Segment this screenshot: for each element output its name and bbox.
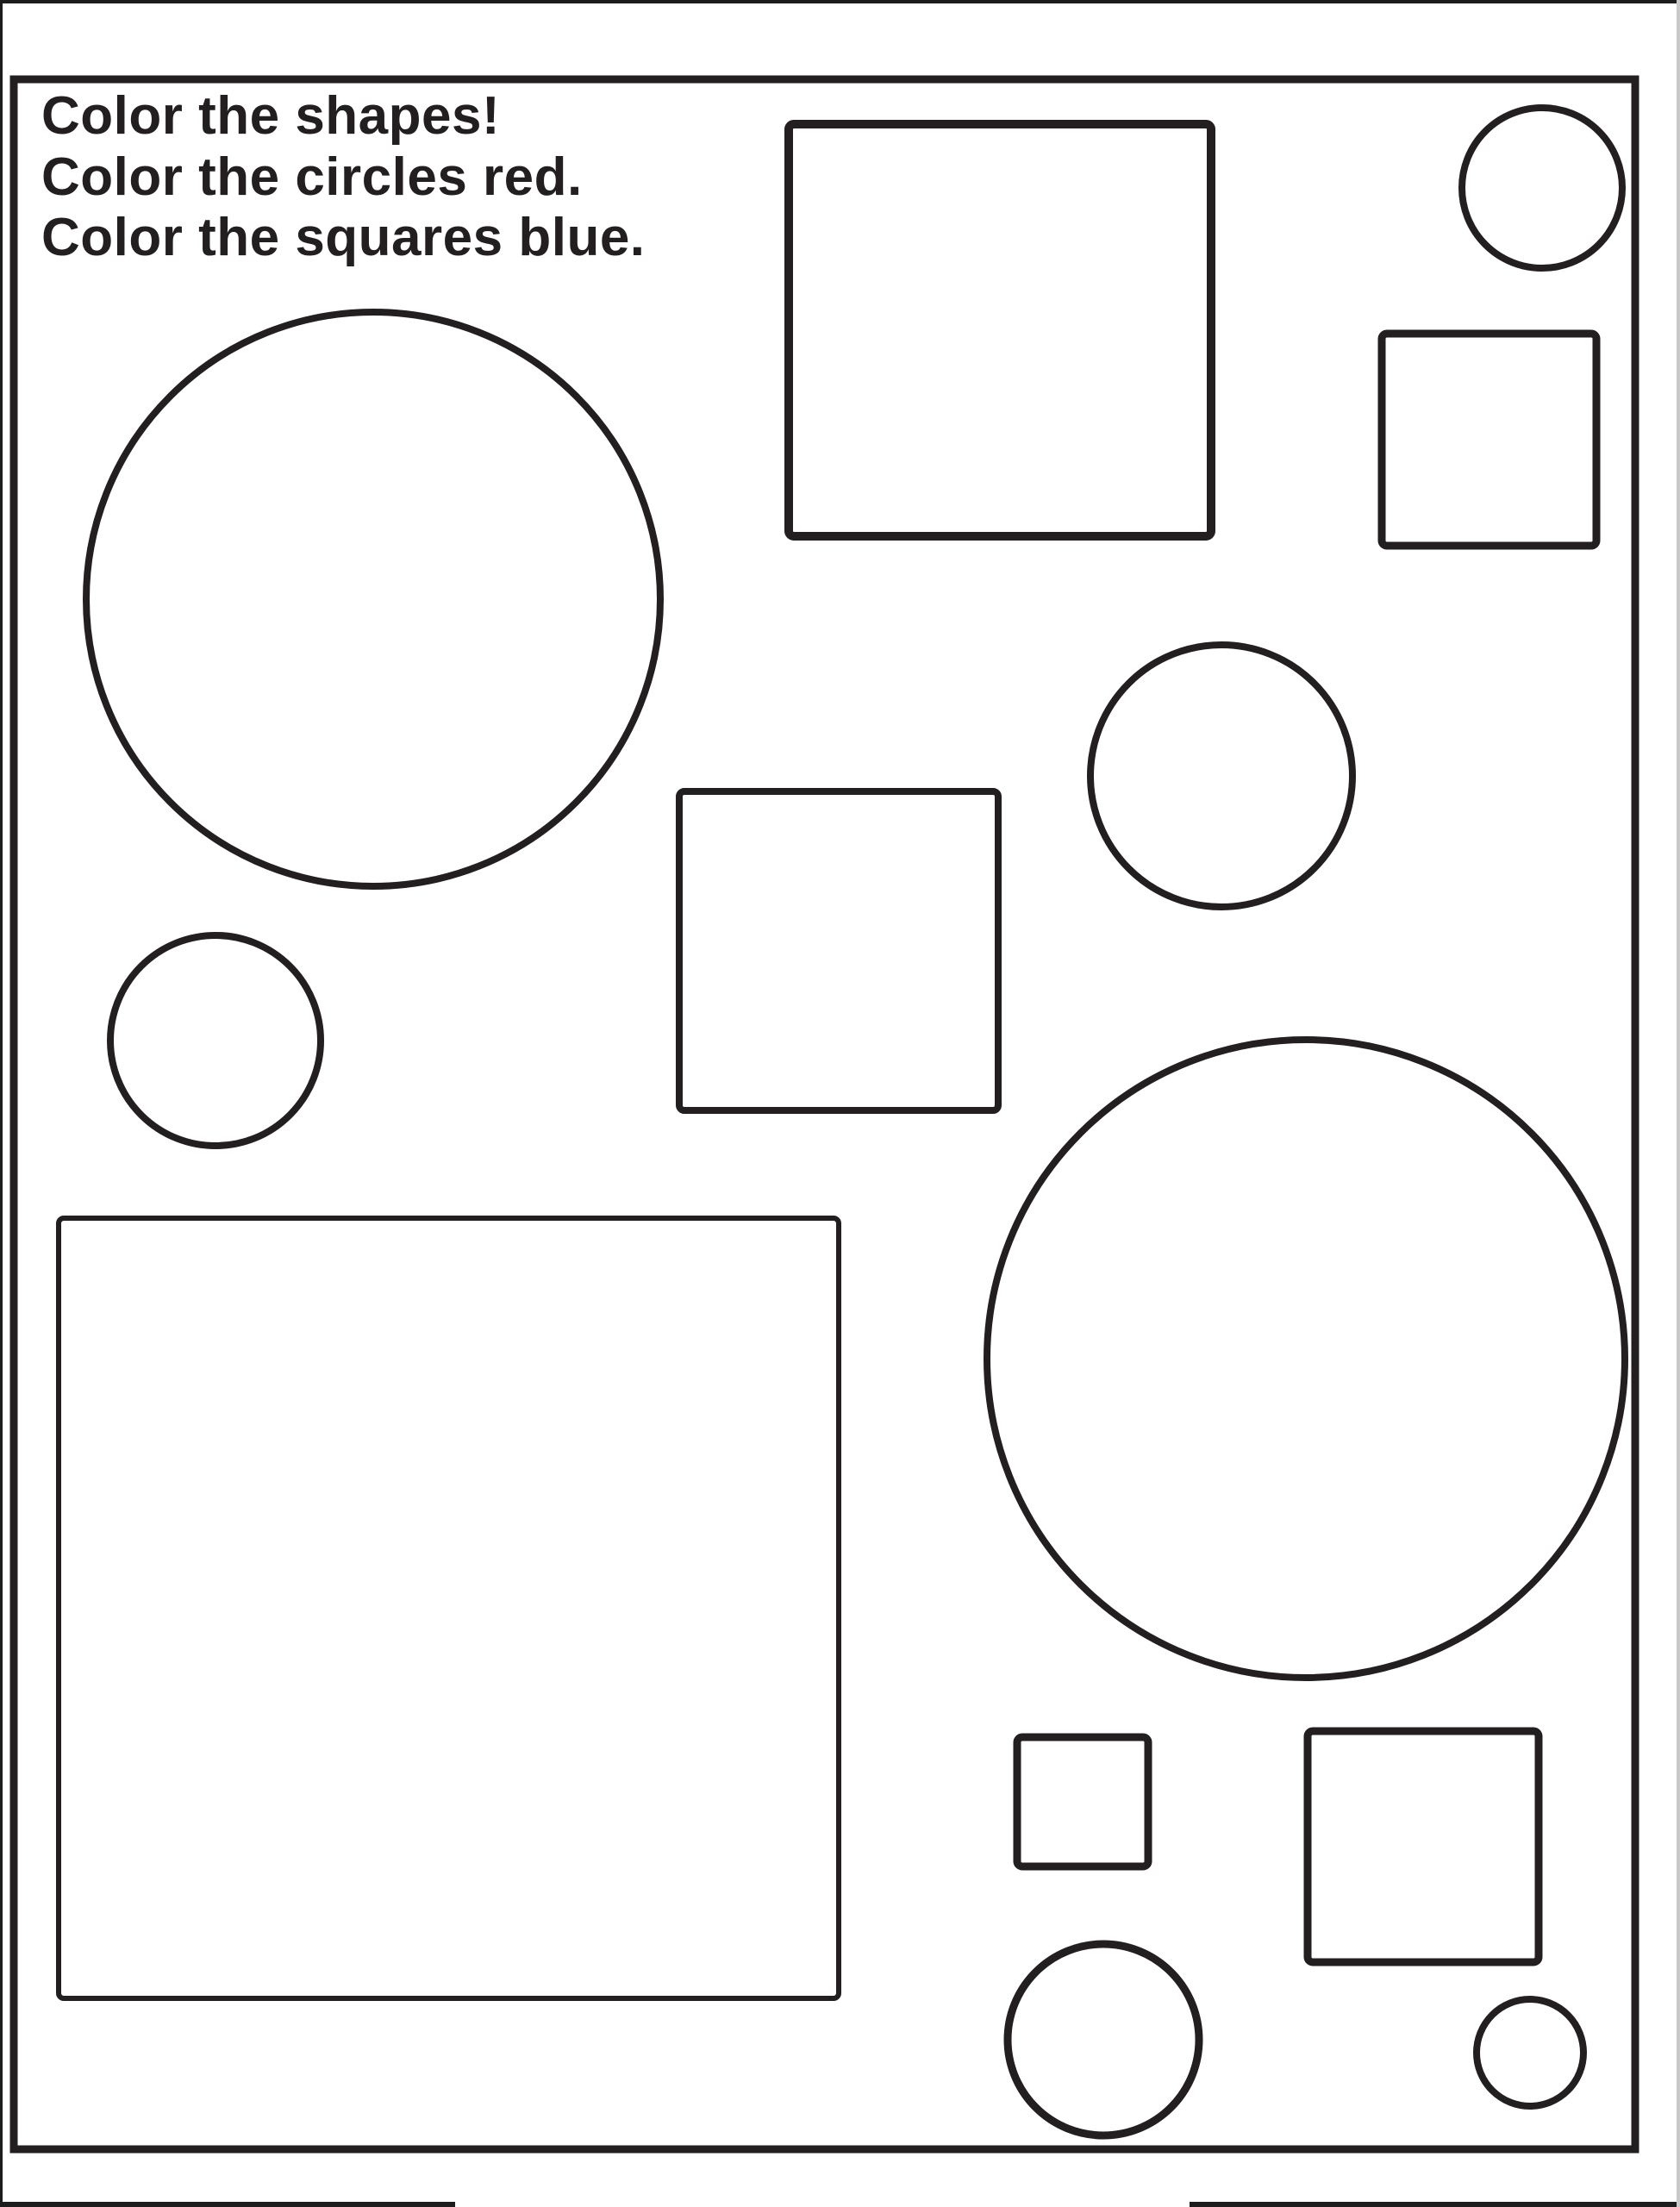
circle-left-small[interactable] — [110, 935, 321, 1146]
circle-large-top-left[interactable] — [86, 312, 660, 886]
circle-bottom-center[interactable] — [1008, 1944, 1199, 2135]
square-large-top[interactable] — [789, 124, 1211, 536]
square-large-bottom-left[interactable] — [59, 1218, 839, 1998]
scan-edge-right — [1677, 0, 1680, 2207]
scan-edge-top — [0, 0, 1680, 3]
circle-top-right-small[interactable] — [1462, 108, 1622, 268]
circle-large-bottom-right[interactable] — [987, 1040, 1625, 1678]
instruction-line-3: Color the squares blue. — [41, 208, 646, 267]
worksheet-page: Color the shapes! Color the circles red.… — [0, 0, 1680, 2207]
square-bottom-small[interactable] — [1017, 1737, 1148, 1866]
border-layer — [14, 79, 1635, 2149]
square-center[interactable] — [679, 791, 998, 1110]
square-bottom-right[interactable] — [1308, 1731, 1539, 1962]
shapes-layer — [59, 108, 1625, 2135]
circle-bottom-right-small[interactable] — [1477, 1999, 1583, 2106]
scan-edge-left — [0, 0, 3, 2207]
square-right-small[interactable] — [1382, 334, 1596, 546]
scan-edge-bottom-right — [1190, 2202, 1680, 2207]
instruction-line-1: Color the shapes! — [41, 86, 500, 146]
worksheet-canvas: Color the shapes! Color the circles red.… — [0, 0, 1680, 2207]
instruction-line-2: Color the circles red. — [41, 147, 583, 207]
circle-middle-right[interactable] — [1090, 645, 1352, 907]
page-border — [14, 79, 1635, 2149]
scan-edge-bottom-left — [0, 2202, 455, 2207]
instructions: Color the shapes! Color the circles red.… — [41, 86, 646, 267]
